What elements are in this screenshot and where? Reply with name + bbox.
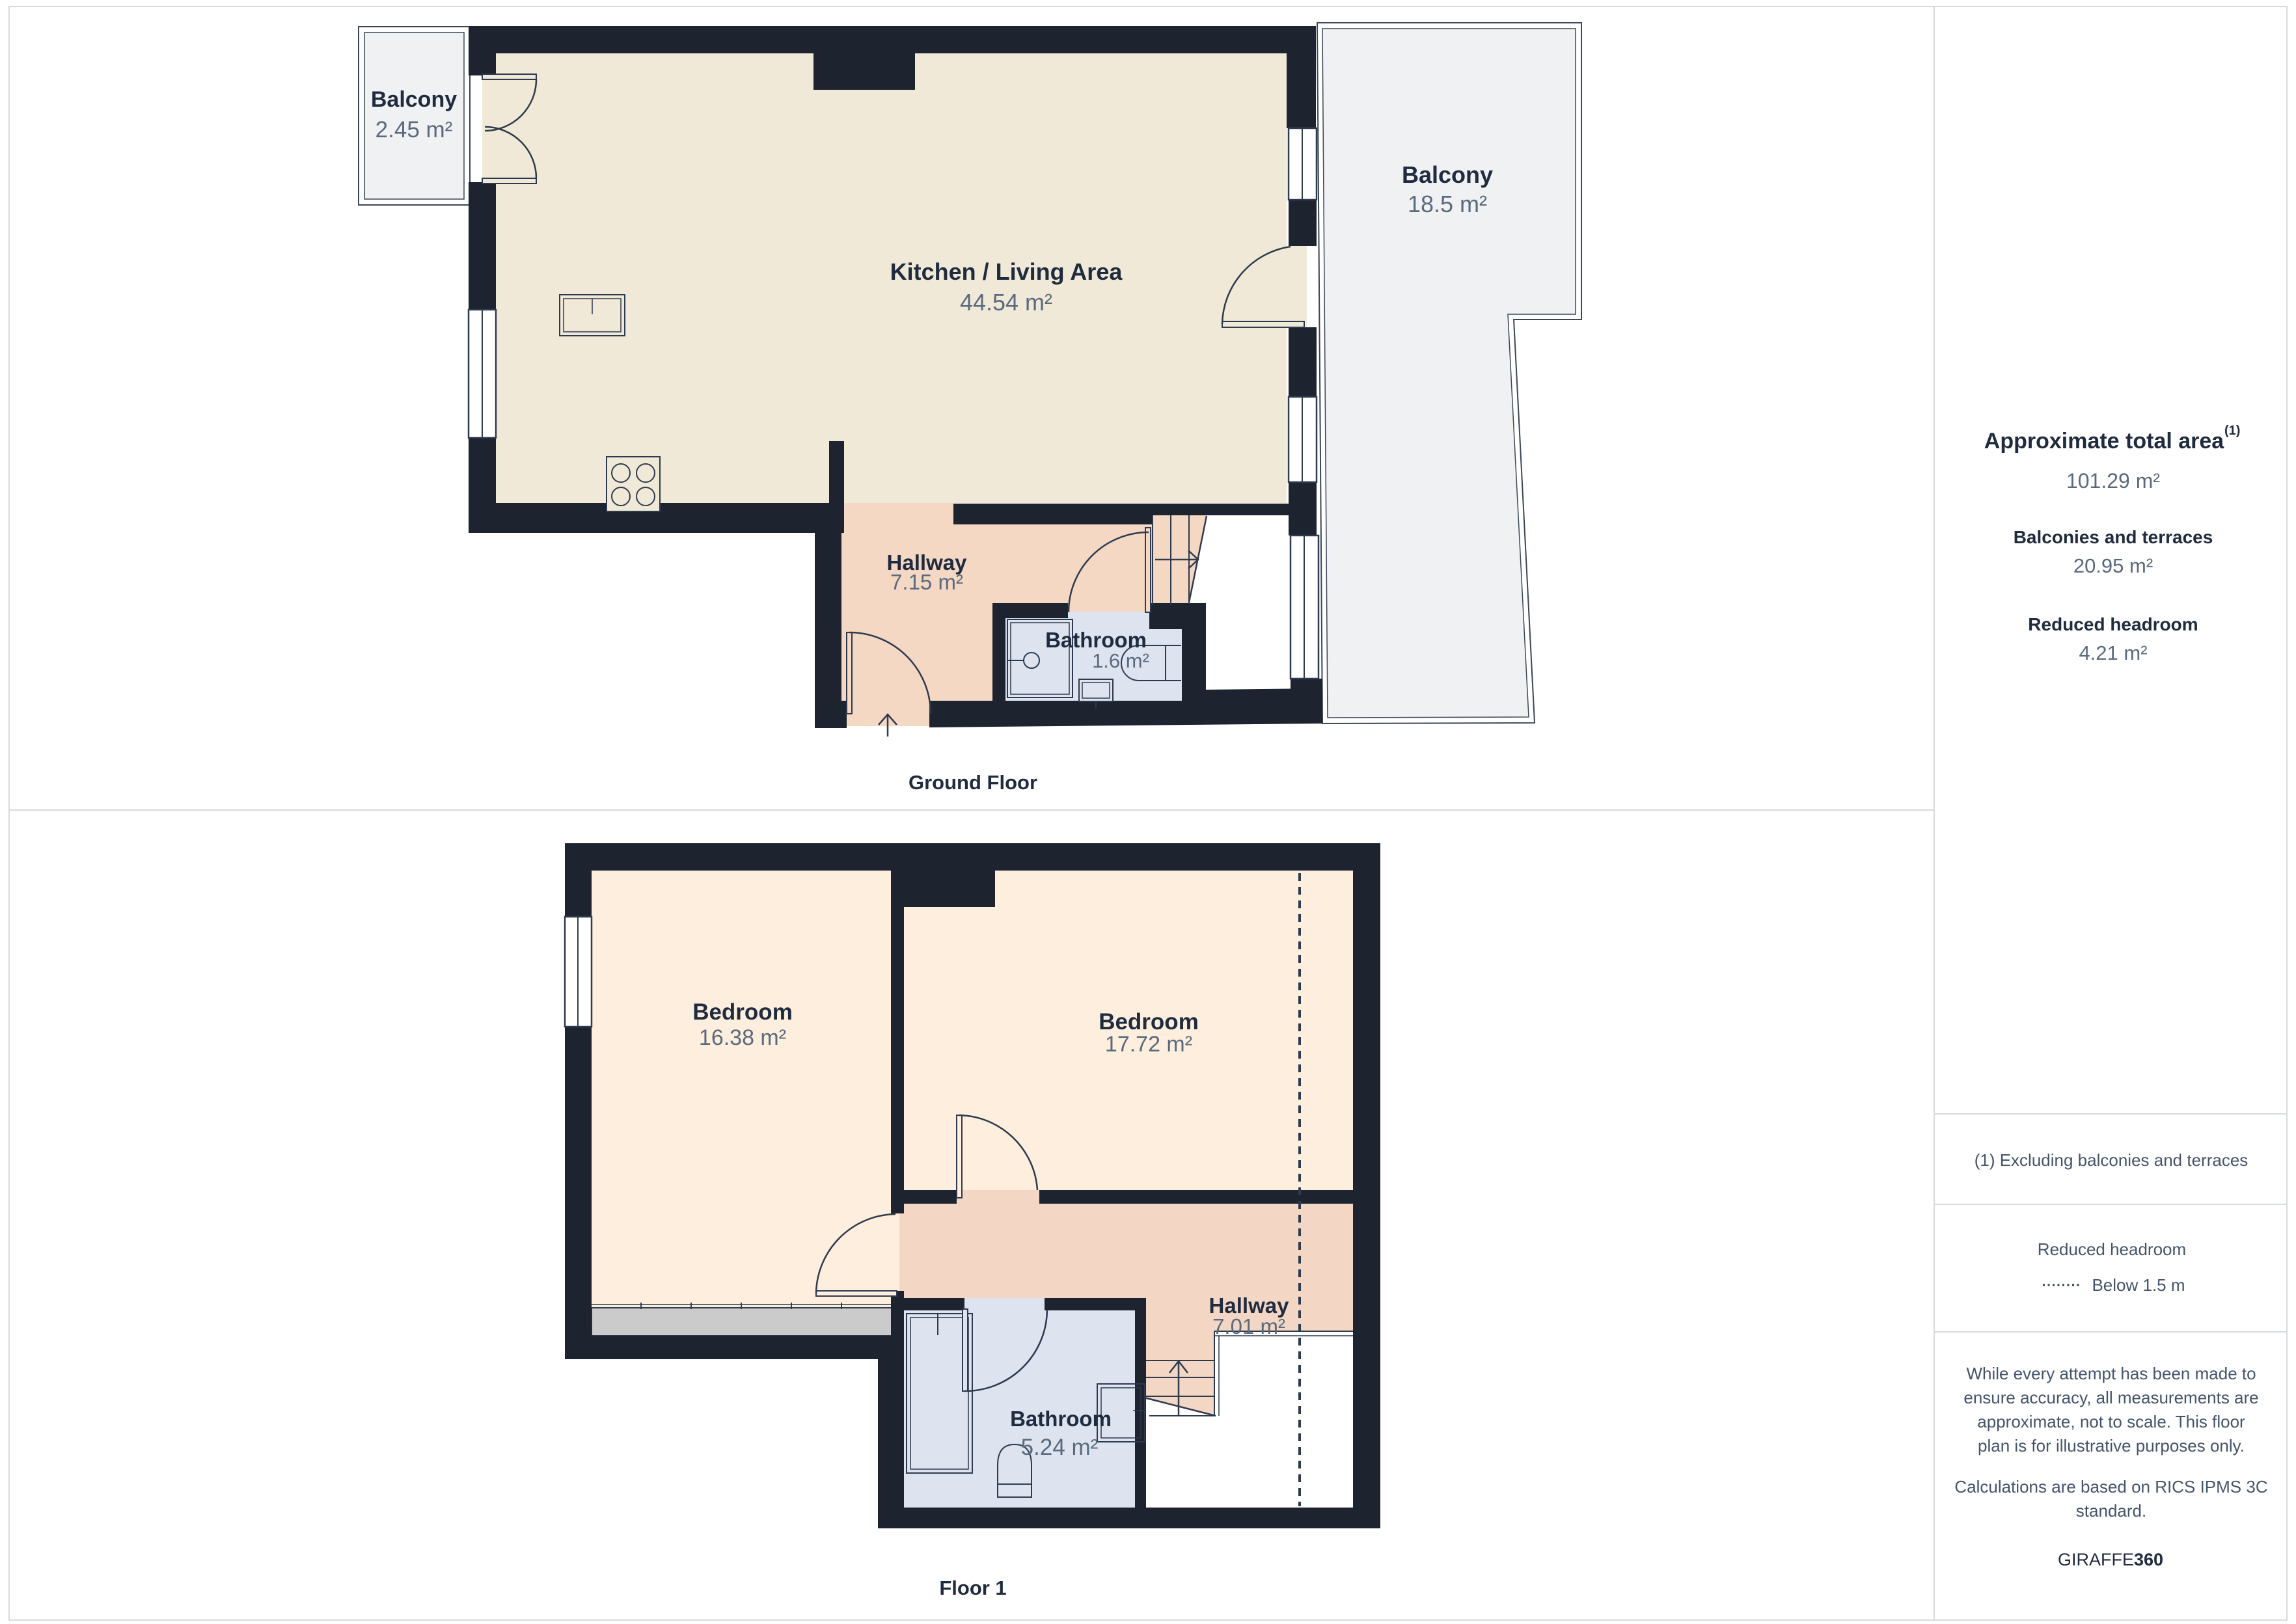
svg-text:20.95 m²: 20.95 m² <box>2073 554 2153 577</box>
svg-text:Bathroom: Bathroom <box>1010 1407 1112 1431</box>
svg-text:(1) Excluding balconies and te: (1) Excluding balconies and terraces <box>1975 1150 2248 1170</box>
svg-text:101.29 m²: 101.29 m² <box>2066 469 2160 493</box>
svg-text:44.54 m²: 44.54 m² <box>960 289 1052 316</box>
svg-text:Kitchen / Living Area: Kitchen / Living Area <box>890 258 1123 285</box>
svg-text:1.6 m²: 1.6 m² <box>1092 649 1149 672</box>
svg-text:Balcony: Balcony <box>371 87 457 112</box>
svg-text:16.38 m²: 16.38 m² <box>699 1025 786 1050</box>
svg-text:Floor 1: Floor 1 <box>939 1577 1006 1599</box>
svg-text:Reduced headroom: Reduced headroom <box>2038 1239 2186 1259</box>
svg-text:18.5 m²: 18.5 m² <box>1408 191 1487 217</box>
svg-text:7.01 m²: 7.01 m² <box>1212 1314 1285 1338</box>
svg-text:Approximate total area: Approximate total area <box>1984 429 2225 453</box>
svg-text:Balcony: Balcony <box>1402 161 1493 188</box>
svg-text:17.72 m²: 17.72 m² <box>1105 1032 1192 1057</box>
svg-text:5.24 m²: 5.24 m² <box>1021 1435 1099 1460</box>
svg-text:4.21 m²: 4.21 m² <box>2079 642 2147 664</box>
svg-text:Calculations are based on RICS: Calculations are based on RICS IPMS 3C <box>1954 1477 2267 1496</box>
svg-text:Below 1.5 m: Below 1.5 m <box>2092 1275 2185 1295</box>
svg-text:Balconies and terraces: Balconies and terraces <box>2014 527 2213 547</box>
svg-text:(1): (1) <box>2224 424 2240 438</box>
svg-text:ensure accuracy, all measureme: ensure accuracy, all measurements are <box>1963 1388 2258 1407</box>
svg-text:Bedroom: Bedroom <box>1099 1009 1199 1035</box>
svg-text:approximate, not to scale. Thi: approximate, not to scale. This floor <box>1977 1412 2245 1431</box>
svg-text:GIRAFFE360: GIRAFFE360 <box>2058 1550 2163 1569</box>
svg-text:While every attempt has been m: While every attempt has been made to <box>1966 1364 2256 1383</box>
svg-text:Bathroom: Bathroom <box>1045 628 1147 652</box>
svg-text:2.45 m²: 2.45 m² <box>376 117 453 142</box>
svg-text:Bedroom: Bedroom <box>692 999 793 1025</box>
svg-text:standard.: standard. <box>2076 1501 2146 1521</box>
svg-text:Reduced headroom: Reduced headroom <box>2028 614 2198 634</box>
svg-text:7.15 m²: 7.15 m² <box>890 570 963 594</box>
svg-text:plan is for illustrative purpo: plan is for illustrative purposes only. <box>1978 1436 2245 1455</box>
svg-text:Ground Floor: Ground Floor <box>909 771 1037 794</box>
